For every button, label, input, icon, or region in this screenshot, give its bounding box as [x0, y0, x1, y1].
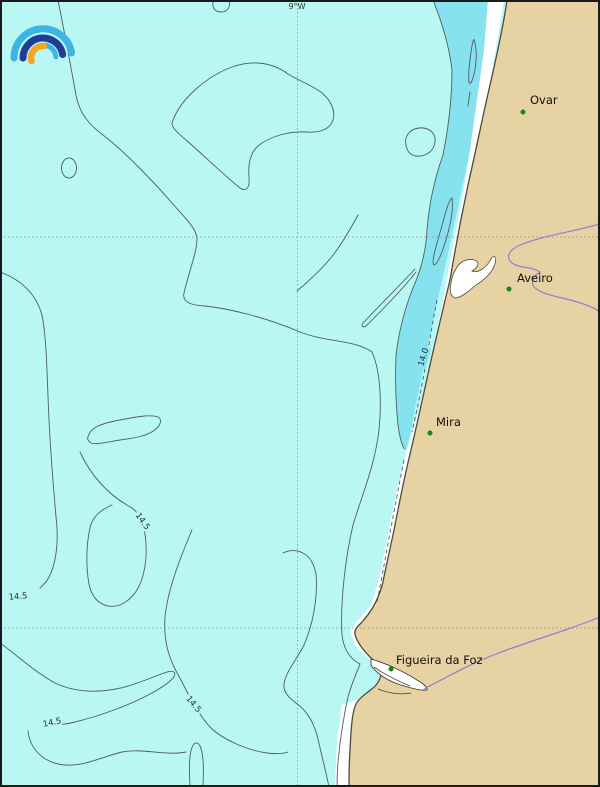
city-label-mira: Mira	[436, 415, 461, 429]
city-label-figueira: Figueira da Foz	[396, 653, 483, 667]
map-canvas: 14.0 14.5 14.5 14.5 14.5 Ovar Aveiro Mir…	[0, 0, 600, 787]
city-dot-mira	[428, 431, 432, 435]
city-dot-ovar	[521, 110, 525, 114]
city-dot-aveiro	[507, 287, 511, 291]
city-dot-figueira	[389, 667, 393, 671]
city-label-ovar: Ovar	[530, 93, 558, 107]
city-label-aveiro: Aveiro	[517, 271, 553, 285]
meridian-label-9w: 9°W	[289, 2, 306, 11]
contour-label-14-5: 14.5	[8, 590, 27, 602]
sst-coastal-map: 14.0 14.5 14.5 14.5 14.5 Ovar Aveiro Mir…	[0, 0, 600, 787]
